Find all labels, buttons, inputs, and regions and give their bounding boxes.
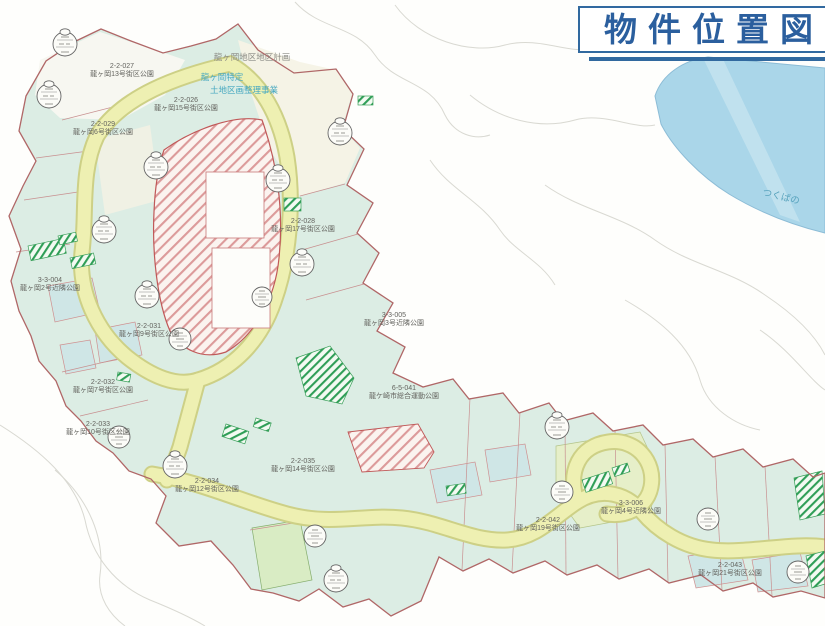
- svg-text:2-2-032: 2-2-032: [91, 379, 115, 386]
- svg-text:龍ヶ岡19号街区公園: 龍ヶ岡19号街区公園: [516, 523, 580, 532]
- svg-text:2-2-042: 2-2-042: [536, 517, 560, 524]
- title-underline: [589, 57, 825, 61]
- svg-text:龍ヶ岡13号街区公園: 龍ヶ岡13号街区公園: [90, 69, 154, 78]
- survey-stamp-icon: [697, 508, 719, 530]
- svg-text:2-2-034: 2-2-034: [195, 478, 219, 485]
- svg-text:龍ヶ岡21号街区公園: 龍ヶ岡21号街区公園: [698, 568, 762, 577]
- plan-inner-block: [206, 172, 264, 238]
- svg-text:2-2-035: 2-2-035: [291, 458, 315, 465]
- svg-text:2-2-026: 2-2-026: [174, 97, 198, 104]
- adjacent-district: つくばの: [655, 57, 825, 233]
- svg-text:2-2-031: 2-2-031: [137, 323, 161, 330]
- project-note-line1: 龍ヶ岡特定: [201, 72, 244, 82]
- survey-stamp-icon: [53, 29, 77, 56]
- svg-text:龍ヶ岡3号近隣公園: 龍ヶ岡3号近隣公園: [364, 318, 424, 327]
- property-location-map-page: つくばの: [0, 0, 825, 626]
- adjacent-district-shape: [655, 57, 825, 233]
- svg-text:3-3-006: 3-3-006: [619, 500, 643, 507]
- svg-text:龍ヶ岡4号近隣公園: 龍ヶ岡4号近隣公園: [601, 506, 661, 515]
- project-note-line2: 土地区画整理事業: [210, 85, 279, 95]
- map-canvas: つくばの: [0, 0, 825, 626]
- svg-text:2-2-033: 2-2-033: [86, 421, 110, 428]
- svg-text:龍ヶ岡12号街区公園: 龍ヶ岡12号街区公園: [175, 484, 239, 493]
- svg-text:龍ケ崎市総合運動公園: 龍ケ崎市総合運動公園: [369, 391, 439, 400]
- svg-text:2-2-043: 2-2-043: [718, 562, 742, 569]
- survey-stamp-icon: [252, 287, 272, 307]
- svg-text:龍ヶ岡14号街区公園: 龍ヶ岡14号街区公園: [271, 464, 335, 473]
- survey-stamp-icon: [787, 561, 809, 583]
- svg-text:2-2-027: 2-2-027: [110, 63, 134, 70]
- svg-text:3-3-005: 3-3-005: [382, 312, 406, 319]
- survey-stamp-icon: [304, 525, 326, 547]
- svg-text:龍ヶ岡10号街区公園: 龍ヶ岡10号街区公園: [66, 427, 130, 436]
- svg-text:2-2-029: 2-2-029: [91, 121, 115, 128]
- svg-text:龍ヶ岡9号街区公園: 龍ヶ岡9号街区公園: [119, 329, 179, 338]
- plan-hatch-secondary: [348, 424, 434, 472]
- svg-text:2-2-028: 2-2-028: [291, 218, 315, 225]
- survey-stamp-icon: [551, 481, 573, 503]
- title-box: 物件位置図: [578, 6, 825, 53]
- svg-text:龍ヶ岡15号街区公園: 龍ヶ岡15号街区公園: [154, 103, 218, 112]
- svg-text:3-3-004: 3-3-004: [38, 277, 62, 284]
- svg-text:龍ヶ岡17号街区公園: 龍ヶ岡17号街区公園: [271, 224, 335, 233]
- svg-text:龍ヶ岡7号街区公園: 龍ヶ岡7号街区公園: [73, 385, 133, 394]
- district-plan-note: 龍ヶ岡地区地区計画: [214, 52, 291, 62]
- svg-text:龍ヶ岡6号街区公園: 龍ヶ岡6号街区公園: [73, 127, 133, 136]
- page-title: 物件位置図: [604, 13, 824, 46]
- svg-text:6-5-041: 6-5-041: [392, 385, 416, 392]
- svg-text:龍ヶ岡2号近隣公園: 龍ヶ岡2号近隣公園: [20, 283, 80, 292]
